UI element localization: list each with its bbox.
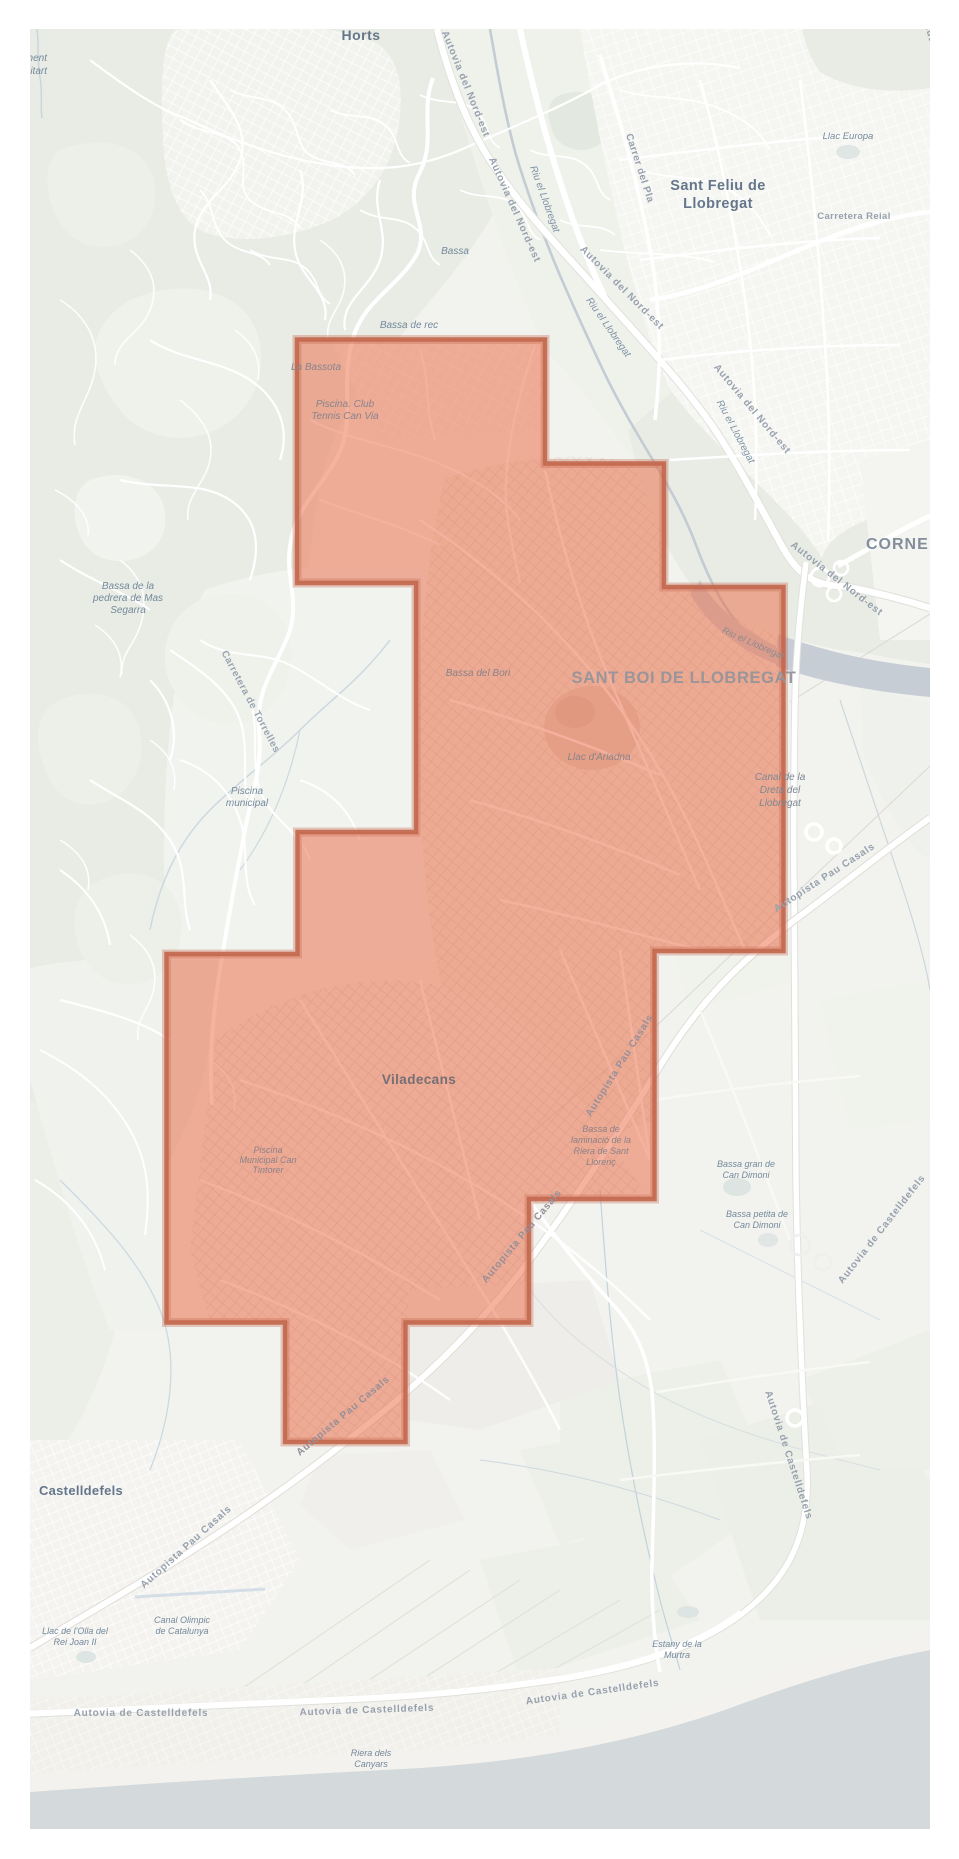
svg-text:municipal: municipal: [226, 798, 269, 809]
svg-text:Tintorer: Tintorer: [253, 1165, 285, 1175]
svg-text:Llobregat: Llobregat: [683, 196, 753, 212]
svg-text:Estany de la: Estany de la: [652, 1639, 702, 1649]
svg-text:Municipal Can: Municipal Can: [239, 1155, 296, 1165]
svg-text:Horts: Horts: [341, 27, 380, 43]
svg-text:Viladecans: Viladecans: [382, 1072, 456, 1087]
svg-text:Castelldefels: Castelldefels: [39, 1483, 123, 1498]
svg-text:Dreta del: Dreta del: [760, 785, 801, 796]
svg-text:Piscina: Piscina: [231, 786, 264, 797]
svg-text:Carretera Reial: Carretera Reial: [817, 211, 891, 222]
svg-text:Bassa de rec: Bassa de rec: [380, 320, 438, 331]
svg-text:Can Dimoni: Can Dimoni: [733, 1220, 781, 1230]
svg-text:Llorenç: Llorenç: [586, 1157, 616, 1167]
svg-text:itart: itart: [30, 66, 48, 77]
svg-text:SANT BOI DE LLOBREGAT: SANT BOI DE LLOBREGAT: [572, 669, 797, 687]
svg-text:Murtra: Murtra: [664, 1650, 690, 1660]
svg-text:Bassa petita de: Bassa petita de: [726, 1209, 788, 1219]
svg-text:Bassa de: Bassa de: [582, 1124, 620, 1134]
svg-text:de Catalunya: de Catalunya: [155, 1626, 208, 1636]
svg-text:pedrera de Mas: pedrera de Mas: [92, 593, 163, 604]
svg-text:Piscina. Club: Piscina. Club: [316, 399, 375, 410]
svg-text:Llac de l'Olla del: Llac de l'Olla del: [42, 1626, 109, 1636]
svg-text:Piscina: Piscina: [253, 1145, 282, 1155]
svg-text:Canal de la: Canal de la: [755, 772, 806, 783]
svg-text:Autovia de Castelldefels: Autovia de Castelldefels: [74, 1708, 209, 1719]
svg-text:Tennis Can Via: Tennis Can Via: [311, 411, 379, 422]
svg-text:Segarra: Segarra: [110, 605, 146, 616]
svg-text:Rei Joan II: Rei Joan II: [53, 1637, 97, 1647]
svg-text:Can Dimoni: Can Dimoni: [722, 1170, 770, 1180]
svg-text:Bassa del Bori: Bassa del Bori: [446, 668, 511, 679]
svg-text:Bassa: Bassa: [441, 246, 469, 257]
svg-text:Canal Olimpic: Canal Olimpic: [154, 1615, 211, 1625]
svg-text:Bassa gran de: Bassa gran de: [717, 1159, 775, 1169]
svg-text:Llobregat: Llobregat: [759, 798, 802, 809]
svg-text:La Bassota: La Bassota: [291, 362, 341, 373]
svg-text:Riera dels: Riera dels: [351, 1748, 392, 1758]
svg-text:Llac d'Ariadna: Llac d'Ariadna: [567, 752, 631, 763]
svg-text:CORNE: CORNE: [866, 536, 929, 553]
svg-text:laminació de la: laminació de la: [571, 1135, 631, 1145]
svg-text:Sant Feliu de: Sant Feliu de: [670, 178, 765, 194]
svg-text:Bassa de la: Bassa de la: [102, 581, 155, 592]
svg-text:nent: nent: [28, 53, 49, 64]
svg-text:Llac Europa: Llac Europa: [823, 131, 874, 142]
svg-text:Canyars: Canyars: [354, 1759, 388, 1769]
svg-text:Riera de Sant: Riera de Sant: [573, 1146, 629, 1156]
